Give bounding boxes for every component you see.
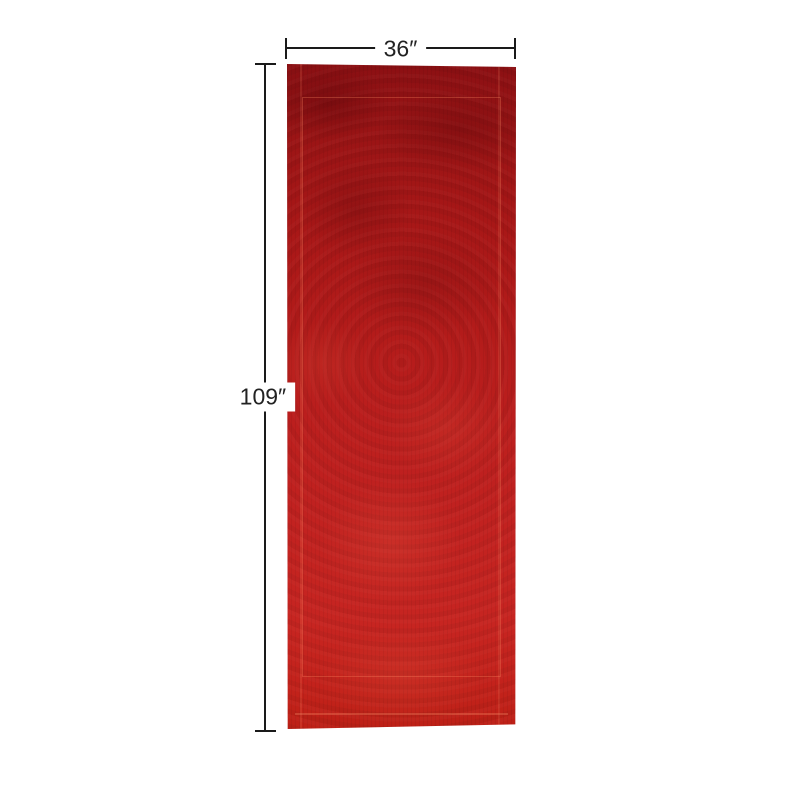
length-dimension: 109″ <box>255 63 276 732</box>
width-dimension: 36″ <box>285 38 516 59</box>
rug-bottom-border-pattern <box>295 713 508 715</box>
length-dimension-bottom-cap <box>255 730 276 732</box>
width-dimension-right-cap <box>514 38 516 59</box>
rug-image <box>287 63 516 729</box>
rug-inner-border-pattern <box>302 97 501 677</box>
width-dimension-label: 36″ <box>375 34 427 63</box>
product-dimension-diagram: 36″ 109″ <box>0 0 800 800</box>
length-dimension-label: 109″ <box>231 383 296 412</box>
